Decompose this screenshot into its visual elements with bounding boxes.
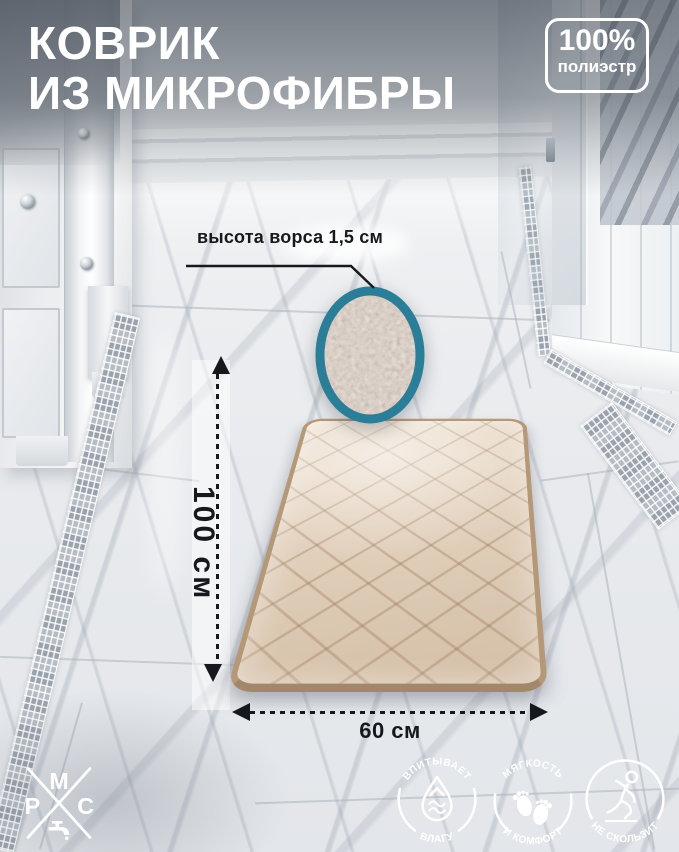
page-title: КОВРИК ИЗ МИКРОФИБРЫ [28,18,456,118]
arrow-left-icon [232,703,250,721]
badge-arc [459,789,475,830]
badge-arc [399,789,415,830]
svg-text:ВЛАГУ: ВЛАГУ [418,831,455,845]
badge-text-bottom: И КОМФОРТ [501,826,566,848]
slip-person-icon [606,772,637,821]
logo-letter-left: Р [25,793,41,819]
logo-letter-right: С [77,793,94,819]
product-promo-image: 100 см 60 см высота ворса 1,5 см [0,0,679,852]
badge-text-top: МЯГКОСТЬ [501,758,565,781]
brand-logo: М Р С [16,758,102,848]
height-dimension-label: 100 см [186,486,220,601]
feature-badge-absorbs: ВПИТЫВАЕТ ВЛАГУ [389,751,485,847]
material-badge-value: 100% [548,25,646,57]
width-dimension-line [250,711,530,714]
cabinet-knob [80,257,93,270]
arrow-right-icon [530,703,548,721]
badge-text-bottom: ВЛАГУ [418,831,455,845]
pile-height-callout: высота ворса 1,5 см [197,227,383,248]
product-title-line2: ИЗ МИКРОФИБРЫ [28,68,456,118]
svg-text:МЯГКОСТЬ: МЯГКОСТЬ [501,758,565,781]
faucet-icon [49,821,70,840]
width-dimension-label: 60 см [330,718,450,744]
badge-text-bottom: НЕ СКОЛЬЗИТ [589,820,662,845]
cabinet-panel [2,308,60,438]
svg-text:НЕ СКОЛЬЗИТ: НЕ СКОЛЬЗИТ [589,820,662,845]
material-badge-name: полиэстр [548,57,646,77]
badge-arc [495,794,509,830]
arrow-up-icon [212,356,230,374]
floor-light-reflection [148,330,182,590]
feature-badge-nonslip: НЕ СКОЛЬЗИТ [577,751,673,847]
pile-closeup-inset [315,286,425,424]
logo-letter-top: М [49,768,68,794]
arrow-down-icon [204,664,222,682]
cabinet-foot [16,436,68,466]
water-drop-icon [423,777,452,820]
feature-badge-soft: МЯГКОСТЬ И КОМФОРТ [485,753,581,849]
badge-arc [558,794,572,830]
cabinet-knob [20,194,35,209]
svg-text:И КОМФОРТ: И КОМФОРТ [501,826,566,848]
callout-leader-line [183,261,378,293]
footprints-icon [512,789,554,827]
material-badge: 100% полиэстр [545,18,649,93]
product-title-line1: КОВРИК [28,18,456,68]
